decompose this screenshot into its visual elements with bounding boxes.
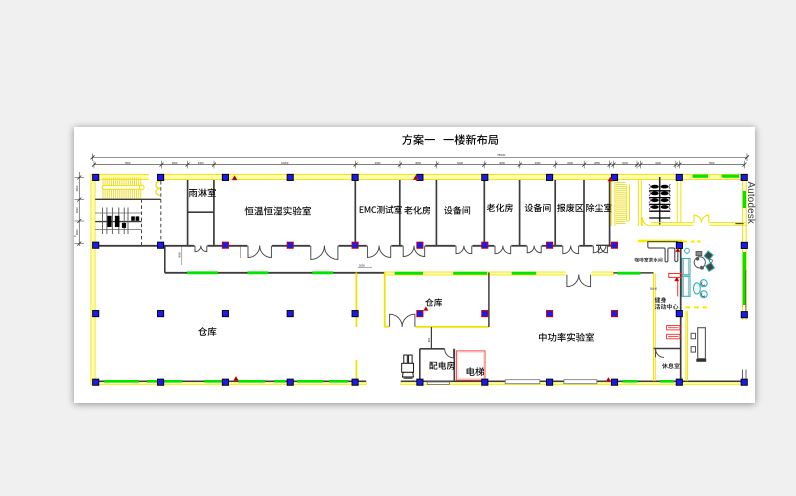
svg-text:5000: 5000 bbox=[359, 264, 365, 268]
svg-text:跑步机: 跑步机 bbox=[650, 287, 658, 291]
svg-text:3300: 3300 bbox=[567, 161, 573, 165]
svg-text:7500: 7500 bbox=[709, 161, 715, 165]
svg-text:4950: 4950 bbox=[375, 161, 381, 165]
svg-text:4050: 4050 bbox=[535, 161, 541, 165]
svg-text:3000: 3000 bbox=[172, 161, 178, 165]
svg-text:5400: 5400 bbox=[457, 161, 463, 165]
svg-text:4400: 4400 bbox=[655, 161, 661, 165]
svg-text:3000: 3000 bbox=[198, 161, 204, 165]
svg-text:3600: 3600 bbox=[75, 207, 79, 213]
svg-text:2850: 2850 bbox=[594, 161, 600, 165]
svg-text:800: 800 bbox=[427, 337, 431, 342]
svg-text:4050: 4050 bbox=[499, 161, 505, 165]
svg-text:16200: 16200 bbox=[281, 161, 289, 165]
svg-text:2640: 2640 bbox=[622, 161, 628, 165]
svg-text:78000: 78000 bbox=[497, 153, 506, 157]
svg-text:3000: 3000 bbox=[178, 252, 182, 258]
svg-text:7800: 7800 bbox=[125, 161, 131, 165]
svg-text:4050: 4050 bbox=[415, 161, 421, 165]
svg-text:3600: 3600 bbox=[75, 185, 79, 191]
svg-text:3600: 3600 bbox=[75, 229, 79, 235]
svg-text:Autodesk: Autodesk bbox=[745, 182, 756, 224]
